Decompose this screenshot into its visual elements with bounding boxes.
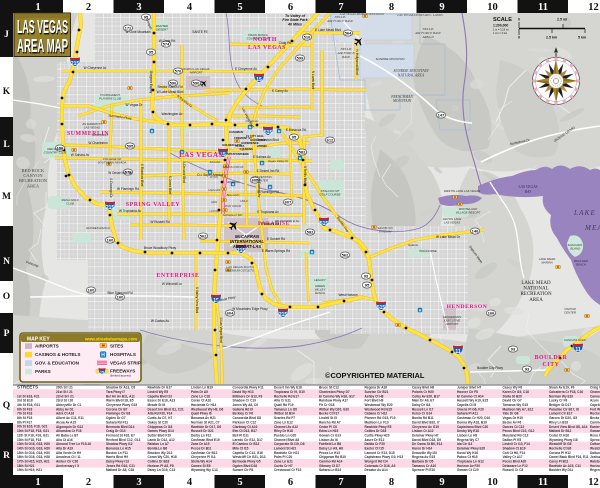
svg-text:604: 604 bbox=[227, 311, 234, 316]
svg-text:Bruce Woodbury Pkwy: Bruce Woodbury Pkwy bbox=[144, 246, 177, 250]
svg-text:Craig Rd: Craig Rd bbox=[279, 41, 292, 45]
svg-text:11: 11 bbox=[538, 2, 548, 13]
svg-text:COUNTRY CLUB: COUNTRY CLUB bbox=[44, 150, 67, 154]
svg-text:CIRCUS CIRCUS: CIRCUS CIRCUS bbox=[223, 165, 244, 169]
svg-text:516: 516 bbox=[304, 35, 311, 40]
svg-text:MEA: MEA bbox=[584, 224, 600, 232]
svg-text:590: 590 bbox=[193, 81, 200, 86]
svg-text:2: 2 bbox=[86, 477, 91, 488]
svg-text:SOUTHERN NEVADA: SOUTHERN NEVADA bbox=[98, 160, 127, 164]
svg-text:DESERT: DESERT bbox=[156, 27, 168, 31]
svg-text:BOULDER: BOULDER bbox=[535, 355, 568, 361]
svg-text:612: 612 bbox=[327, 138, 334, 143]
svg-text:Owens Av: Owens Av bbox=[245, 119, 259, 123]
svg-text:BAY: BAY bbox=[525, 190, 532, 194]
svg-text:N Lamb Blvd: N Lamb Blvd bbox=[311, 71, 315, 89]
svg-text:CASINOS & HOTELS: CASINOS & HOTELS bbox=[35, 352, 80, 357]
svg-text:RANCH: RANCH bbox=[315, 291, 326, 295]
svg-text:WILDHORSE E Su: WILDHORSE E Su bbox=[275, 219, 300, 223]
svg-text:146: 146 bbox=[472, 229, 479, 234]
svg-text:11: 11 bbox=[538, 477, 548, 488]
svg-text:CAESARS: CAESARS bbox=[208, 188, 221, 192]
svg-text:VENETIAN: VENETIAN bbox=[227, 180, 240, 184]
svg-text:SCALE: SCALE bbox=[493, 17, 512, 23]
svg-text:S Rainbow Blvd: S Rainbow Blvd bbox=[140, 164, 144, 187]
svg-text:HENDERSON: HENDERSON bbox=[447, 304, 488, 310]
svg-text:0: 0 bbox=[518, 18, 520, 22]
svg-text:10: 10 bbox=[487, 477, 498, 488]
svg-text:3: 3 bbox=[136, 2, 141, 13]
svg-text:H: H bbox=[101, 353, 105, 359]
svg-text:160: 160 bbox=[117, 295, 124, 300]
svg-text:W Cheyenne Av: W Cheyenne Av bbox=[84, 66, 107, 70]
svg-text:7: 7 bbox=[338, 477, 343, 488]
svg-text:www.streetwisemaps.com: www.streetwisemaps.com bbox=[84, 337, 137, 342]
svg-text:LAS VEGAS-DUNES REC. LANDS: LAS VEGAS-DUNES REC. LANDS bbox=[396, 13, 443, 17]
svg-text:H: H bbox=[269, 185, 272, 189]
svg-text:562: 562 bbox=[342, 253, 349, 258]
svg-text:Smoke Ranch Rd: Smoke Ranch Rd bbox=[158, 85, 183, 89]
svg-text:SPRING VALLEY: SPRING VALLEY bbox=[126, 202, 181, 208]
svg-text:M: M bbox=[2, 192, 11, 202]
svg-text:PREMIUM OUTLETS: PREMIUM OUTLETS bbox=[226, 268, 254, 272]
svg-text:(limited access): (limited access) bbox=[110, 374, 131, 378]
svg-text:GOLDEN GATE: GOLDEN GATE bbox=[222, 143, 242, 147]
svg-text:12: 12 bbox=[588, 2, 599, 13]
svg-text:MAP KEY: MAP KEY bbox=[27, 337, 50, 343]
svg-text:VEGAS STRIP: VEGAS STRIP bbox=[110, 361, 141, 366]
svg-text:WYNN: WYNN bbox=[210, 175, 218, 179]
svg-text:8: 8 bbox=[389, 2, 394, 13]
svg-text:W Sahara Av: W Sahara Av bbox=[71, 153, 90, 157]
svg-text:1: 1 bbox=[35, 477, 40, 488]
svg-text:LAKE: LAKE bbox=[573, 209, 596, 217]
svg-text:CLUB: CLUB bbox=[66, 201, 74, 205]
svg-text:W Desert Inn Rd: W Desert Inn Rd bbox=[108, 171, 132, 175]
svg-text:W Vegas Dr: W Vegas Dr bbox=[125, 103, 143, 107]
svg-text:E Cheyenne Av: E Cheyenne Av bbox=[235, 67, 257, 71]
svg-text:ARIA: ARIA bbox=[210, 200, 217, 204]
svg-text:SUNRISE MOUNTAIN: SUNRISE MOUNTAIN bbox=[376, 57, 406, 61]
svg-text:N Hollywood Blvd: N Hollywood Blvd bbox=[355, 50, 359, 75]
svg-text:E Bonanza Rd: E Bonanza Rd bbox=[286, 128, 307, 132]
svg-text:4 QUEENS: 4 QUEENS bbox=[239, 147, 253, 151]
svg-text:HOSPITALS: HOSPITALS bbox=[110, 352, 136, 357]
svg-text:BELLAGIO: BELLAGIO bbox=[227, 193, 240, 197]
svg-text:WILDHORSE: WILDHORSE bbox=[419, 249, 437, 253]
svg-text:8: 8 bbox=[389, 477, 394, 488]
svg-text:215: 215 bbox=[237, 248, 246, 254]
svg-text:515: 515 bbox=[320, 221, 329, 227]
svg-text:E Lake Mead Blvd: E Lake Mead Blvd bbox=[315, 28, 341, 32]
svg-text:MARINA: MARINA bbox=[541, 260, 552, 264]
svg-text:EL CORTEZ: EL CORTEZ bbox=[250, 138, 266, 142]
svg-text:LEGACY: LEGACY bbox=[314, 278, 327, 282]
svg-text:AIRPORT: AIRPORT bbox=[189, 70, 203, 74]
svg-text:LUXOR: LUXOR bbox=[210, 209, 219, 213]
svg-text:E Tropicana Av: E Tropicana Av bbox=[257, 210, 279, 214]
svg-text:576: 576 bbox=[175, 69, 182, 74]
svg-text:O: O bbox=[3, 292, 10, 302]
svg-text:582: 582 bbox=[299, 150, 306, 155]
svg-text:4: 4 bbox=[187, 477, 193, 488]
svg-text:166: 166 bbox=[488, 311, 495, 316]
svg-text:W Windmill Ln: W Windmill Ln bbox=[162, 282, 183, 286]
svg-text:ENTERPRISE: ENTERPRISE bbox=[156, 273, 199, 279]
svg-text:595: 595 bbox=[127, 144, 134, 149]
svg-text:Q: Q bbox=[3, 401, 10, 411]
svg-text:95: 95 bbox=[365, 283, 370, 288]
svg-text:15: 15 bbox=[256, 77, 262, 83]
svg-text:STADIUM: STADIUM bbox=[379, 229, 392, 233]
svg-text:E Carey Av: E Carey Av bbox=[272, 89, 288, 93]
svg-text:SAHARA: SAHARA bbox=[210, 160, 221, 164]
svg-text:H: H bbox=[261, 161, 264, 165]
svg-text:VILLAGE RESORT: VILLAGE RESORT bbox=[456, 210, 481, 214]
svg-text:H: H bbox=[311, 250, 314, 254]
svg-text:Craig Cir C5Channel St I13Cano: Craig Cir C5Channel St I13Canosa Blvd A9… bbox=[590, 386, 600, 473]
svg-text:7: 7 bbox=[338, 2, 343, 13]
svg-text:95: 95 bbox=[292, 135, 297, 140]
svg-text:12: 12 bbox=[588, 477, 599, 488]
svg-text:2: 2 bbox=[86, 2, 91, 13]
svg-text:6: 6 bbox=[288, 2, 293, 13]
svg-text:P: P bbox=[4, 329, 10, 339]
svg-text:LAS VEGAS: LAS VEGAS bbox=[17, 18, 68, 38]
svg-text:E Desert Inn Rd: E Desert Inn Rd bbox=[257, 169, 280, 173]
svg-text:BEACH: BEACH bbox=[576, 262, 587, 266]
svg-text:Gragson Expwy: Gragson Expwy bbox=[149, 71, 153, 94]
svg-text:CASHMAN: CASHMAN bbox=[229, 130, 243, 134]
svg-text:H: H bbox=[278, 129, 281, 133]
svg-text:6: 6 bbox=[288, 477, 293, 488]
svg-text:564: 564 bbox=[345, 31, 352, 36]
svg-text:562: 562 bbox=[200, 234, 207, 239]
svg-text:95: 95 bbox=[149, 50, 154, 55]
svg-text:160: 160 bbox=[88, 288, 95, 293]
svg-text:L: L bbox=[3, 140, 9, 150]
svg-text:LAS VEGAS: LAS VEGAS bbox=[179, 151, 223, 159]
svg-text:N: N bbox=[3, 257, 10, 267]
svg-text:607: 607 bbox=[285, 200, 292, 205]
svg-text:W Lake Mead Blvd: W Lake Mead Blvd bbox=[157, 90, 184, 94]
svg-text:UNLV: UNLV bbox=[240, 199, 249, 203]
svg-text:LAS VEGAS: LAS VEGAS bbox=[248, 45, 286, 51]
svg-text:599: 599 bbox=[297, 56, 304, 61]
svg-text:0: 0 bbox=[518, 36, 520, 40]
svg-text:S Durango Dr: S Durango Dr bbox=[109, 178, 113, 198]
svg-text:ISLAND: ISLAND bbox=[570, 246, 580, 250]
svg-text:1: 1 bbox=[35, 2, 40, 13]
svg-text:5: 5 bbox=[237, 2, 242, 13]
svg-text:93: 93 bbox=[525, 367, 530, 372]
svg-text:E Sunset Rd: E Sunset Rd bbox=[267, 237, 285, 241]
svg-text:SITES: SITES bbox=[110, 344, 123, 349]
svg-text:LV CITY HALL: LV CITY HALL bbox=[246, 134, 264, 138]
svg-text:Boulder City Pkwy: Boulder City Pkwy bbox=[477, 366, 503, 370]
svg-text:Vegas Valley Dr: Vegas Valley Dr bbox=[268, 159, 290, 163]
svg-text:CASCATA GOLF: CASCATA GOLF bbox=[564, 338, 586, 342]
svg-text:LAS VEGAS: LAS VEGAS bbox=[518, 185, 538, 189]
svg-text:W Flamingo Rd: W Flamingo Rd bbox=[117, 187, 139, 191]
svg-text:11: 11 bbox=[575, 347, 581, 353]
svg-text:93: 93 bbox=[511, 347, 516, 352]
svg-text:215: 215 bbox=[279, 312, 288, 318]
svg-text:S Nellis Blvd: S Nellis Blvd bbox=[303, 166, 307, 184]
svg-text:STRATOSPHERE: STRATOSPHERE bbox=[227, 152, 249, 156]
svg-text:SUNRISE MOUNTAINNATURAL AREA: SUNRISE MOUNTAINNATURAL AREA bbox=[393, 69, 429, 77]
svg-text:11: 11 bbox=[455, 349, 461, 355]
svg-text:©COPYRIGHTED MATERIAL: ©COPYRIGHTED MATERIAL bbox=[325, 371, 425, 380]
svg-text:K: K bbox=[3, 87, 11, 97]
svg-text:PARKS: PARKS bbox=[35, 369, 51, 374]
svg-text:AREA MAP: AREA MAP bbox=[17, 37, 68, 57]
svg-text:W Tropicana Av: W Tropicana Av bbox=[119, 209, 142, 213]
svg-text:160: 160 bbox=[107, 238, 114, 243]
svg-text:1 in = 3.16 mi: 1 in = 3.16 mi bbox=[493, 28, 509, 32]
svg-text:215: 215 bbox=[71, 61, 80, 67]
svg-text:H: H bbox=[419, 308, 422, 312]
svg-text:MANDALAY BAY: MANDALAY BAY bbox=[223, 213, 243, 217]
svg-text:2.5 km: 2.5 km bbox=[546, 36, 557, 40]
svg-text:CENTER: CENTER bbox=[564, 310, 576, 314]
svg-text:515: 515 bbox=[377, 305, 386, 311]
svg-text:COUNTRY CLUB: COUNTRY CLUB bbox=[247, 36, 270, 40]
svg-text:4: 4 bbox=[187, 2, 193, 13]
svg-text:H: H bbox=[299, 156, 302, 160]
svg-text:10: 10 bbox=[487, 2, 498, 13]
svg-text:S Decatur Blvd: S Decatur Blvd bbox=[182, 161, 186, 182]
svg-text:15: 15 bbox=[100, 370, 104, 374]
svg-text:2.5 mi: 2.5 mi bbox=[557, 18, 567, 22]
svg-text:West Horizon: West Horizon bbox=[338, 293, 357, 297]
svg-text:CITY: CITY bbox=[543, 362, 560, 368]
svg-text:S Las Vegas Blvd: S Las Vegas Blvd bbox=[219, 318, 223, 343]
svg-text:582: 582 bbox=[307, 230, 314, 235]
svg-text:W Lone Mountain: W Lone Mountain bbox=[126, 30, 151, 34]
svg-text:515: 515 bbox=[264, 130, 273, 136]
svg-text:S Jones Blvd: S Jones Blvd bbox=[168, 176, 172, 195]
svg-text:Washington Av: Washington Av bbox=[161, 112, 182, 116]
svg-text:WESTIN LAKE LAS VEGAS: WESTIN LAKE LAS VEGAS bbox=[444, 189, 481, 193]
svg-text:S Valley View Blvd: S Valley View Blvd bbox=[195, 287, 199, 314]
svg-text:5 km: 5 km bbox=[578, 36, 586, 40]
svg-text:SANTE FE: SANTE FE bbox=[192, 30, 208, 34]
svg-text:R: R bbox=[3, 451, 10, 461]
svg-text:J: J bbox=[4, 30, 9, 40]
svg-text:CENTER: CENTER bbox=[256, 178, 268, 182]
svg-text:W Cactus Av: W Cactus Av bbox=[151, 319, 170, 323]
svg-text:GOLF COURSE: GOLF COURSE bbox=[320, 192, 341, 196]
svg-text:FRENCHMANMOUNTAIN: FRENCHMANMOUNTAIN bbox=[390, 95, 413, 103]
svg-text:AIRPORT: AIRPORT bbox=[445, 322, 459, 326]
svg-text:W Craig Rd: W Craig Rd bbox=[159, 39, 176, 43]
svg-text:W Mountains Edge Pkwy: W Mountains Edge Pkwy bbox=[232, 307, 268, 311]
svg-text:5: 5 bbox=[237, 477, 242, 488]
svg-text:W Charleston: W Charleston bbox=[88, 141, 108, 145]
svg-text:GOV. & EDUCATION: GOV. & EDUCATION bbox=[35, 361, 80, 366]
svg-text:LAS VEGAS: LAS VEGAS bbox=[444, 220, 460, 224]
svg-text:AIRPORTS: AIRPORTS bbox=[35, 344, 59, 349]
svg-text:PLAYERS CLUB: PLAYERS CLUB bbox=[99, 96, 121, 100]
svg-text:215: 215 bbox=[106, 205, 115, 211]
svg-text:Galleria: Galleria bbox=[408, 243, 418, 247]
svg-text:W Lake Mead Dr: W Lake Mead Dr bbox=[436, 235, 461, 239]
svg-text:Blue Diamond Rd: Blue Diamond Rd bbox=[108, 291, 133, 295]
svg-text:1:200,000: 1:200,000 bbox=[493, 24, 508, 28]
svg-text:9: 9 bbox=[439, 477, 444, 488]
svg-text:W Russell Rd: W Russell Rd bbox=[150, 220, 170, 224]
svg-text:9: 9 bbox=[439, 2, 444, 13]
svg-text:SUNCOAST: SUNCOAST bbox=[92, 133, 108, 137]
svg-text:RHODES RANCH: RHODES RANCH bbox=[86, 226, 110, 230]
svg-text:147: 147 bbox=[438, 113, 445, 118]
svg-text:E Warm Springs Rd: E Warm Springs Rd bbox=[262, 249, 290, 253]
svg-text:LAS VEGAS: LAS VEGAS bbox=[84, 125, 100, 129]
svg-text:1 cm = 2 km: 1 cm = 2 km bbox=[493, 31, 507, 35]
svg-text:93: 93 bbox=[364, 274, 369, 279]
svg-text:MGM GRAND: MGM GRAND bbox=[225, 204, 242, 208]
svg-text:ATOMIC: ATOMIC bbox=[257, 144, 267, 148]
svg-text:H: H bbox=[151, 129, 154, 133]
svg-text:3: 3 bbox=[136, 477, 141, 488]
